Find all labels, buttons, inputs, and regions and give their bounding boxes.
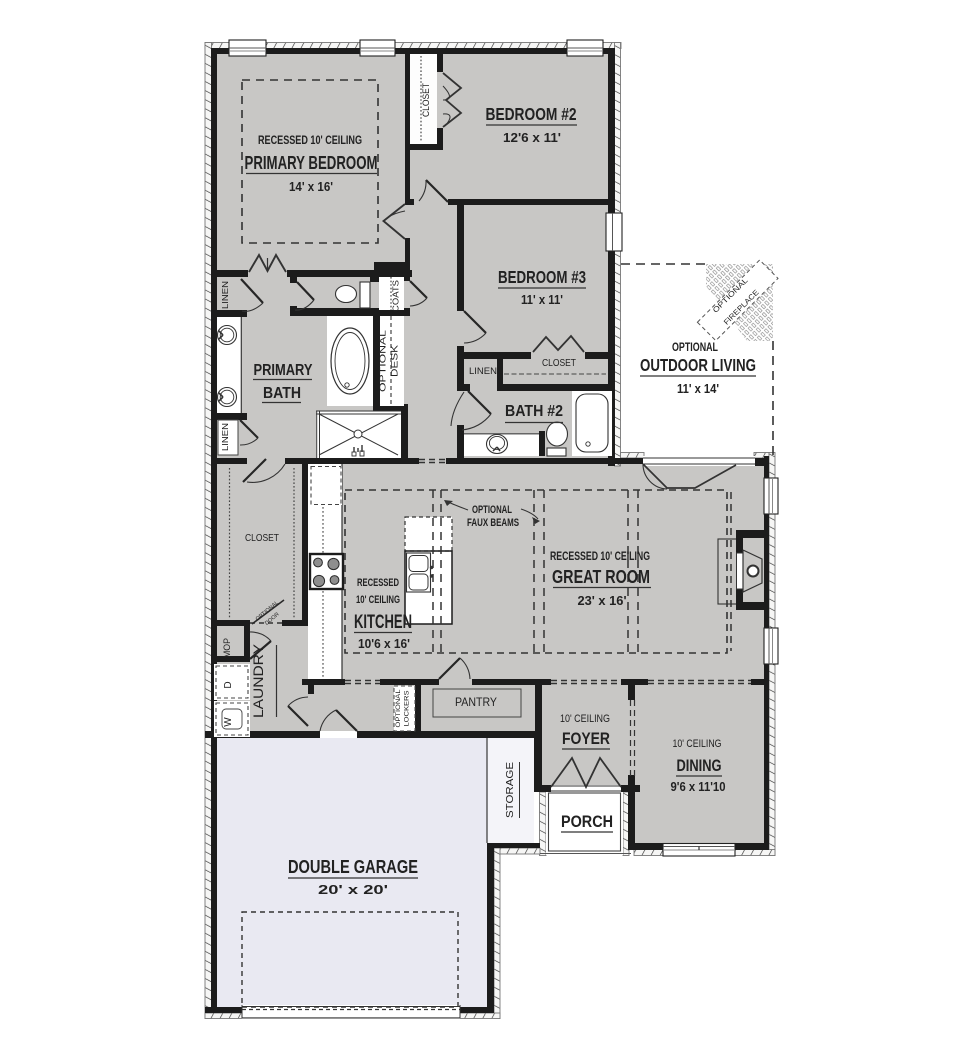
svg-text:PRIMARY BEDROOM: PRIMARY BEDROOM [245,153,378,173]
svg-text:OPTIONAL: OPTIONAL [672,340,718,354]
svg-text:LAUNDRY: LAUNDRY [251,644,266,718]
svg-text:FOYER: FOYER [562,730,610,748]
svg-text:BEDROOM #2: BEDROOM #2 [486,104,577,124]
svg-text:BEDROOM #3: BEDROOM #3 [498,267,586,287]
svg-text:D: D [223,681,234,688]
svg-text:CLOSET: CLOSET [542,358,576,369]
svg-text:CLOSET: CLOSET [245,532,279,544]
svg-text:DINING: DINING [677,757,722,775]
svg-text:DESK: DESK [390,345,400,377]
svg-text:LINEN: LINEN [220,281,230,309]
svg-text:LOCKERS: LOCKERS [405,691,411,727]
svg-text:COATS: COATS [391,280,401,312]
svg-text:14' x 16': 14' x 16' [289,179,333,194]
svg-text:11' x 14': 11' x 14' [677,382,719,396]
svg-text:OPTIONAL: OPTIONAL [472,504,512,516]
svg-text:10' CEILING: 10' CEILING [673,738,722,750]
svg-text:OUTDOOR LIVING: OUTDOOR LIVING [640,355,756,375]
svg-text:DOUBLE GARAGE: DOUBLE GARAGE [288,856,418,877]
svg-text:BATH #2: BATH #2 [505,403,563,420]
svg-text:RECESSED: RECESSED [357,577,399,589]
svg-text:RECESSED 10' CEILING: RECESSED 10' CEILING [550,551,650,563]
svg-text:FAUX BEAMS: FAUX BEAMS [467,517,519,529]
svg-text:PANTRY: PANTRY [455,697,497,709]
svg-text:LINEN: LINEN [220,423,230,451]
svg-text:STORAGE: STORAGE [504,762,516,818]
svg-text:10'6 x 16': 10'6 x 16' [358,637,410,651]
svg-text:OPTIONAL: OPTIONAL [396,689,402,728]
svg-text:20' x 20': 20' x 20' [318,882,388,897]
svg-text:RECESSED 10' CEILING: RECESSED 10' CEILING [258,135,362,147]
svg-text:11' x 11': 11' x 11' [521,293,563,307]
svg-text:KITCHEN: KITCHEN [354,612,412,633]
svg-text:W: W [223,717,234,727]
svg-text:PORCH: PORCH [561,813,613,831]
svg-text:MOP: MOP [222,638,232,658]
svg-text:10' CEILING: 10' CEILING [560,713,610,725]
svg-text:LINEN: LINEN [469,366,497,377]
svg-text:BATH: BATH [263,385,301,402]
svg-text:GREAT ROOM: GREAT ROOM [552,566,650,587]
svg-text:23' x 16': 23' x 16' [578,593,627,608]
svg-text:PRIMARY: PRIMARY [254,362,313,379]
svg-text:OPTIONAL: OPTIONAL [379,329,388,392]
svg-text:9'6 x 11'10: 9'6 x 11'10 [671,780,726,794]
svg-text:CLOSET: CLOSET [421,83,431,117]
svg-text:12'6 x 11': 12'6 x 11' [503,131,561,145]
svg-text:10' CEILING: 10' CEILING [356,594,400,606]
